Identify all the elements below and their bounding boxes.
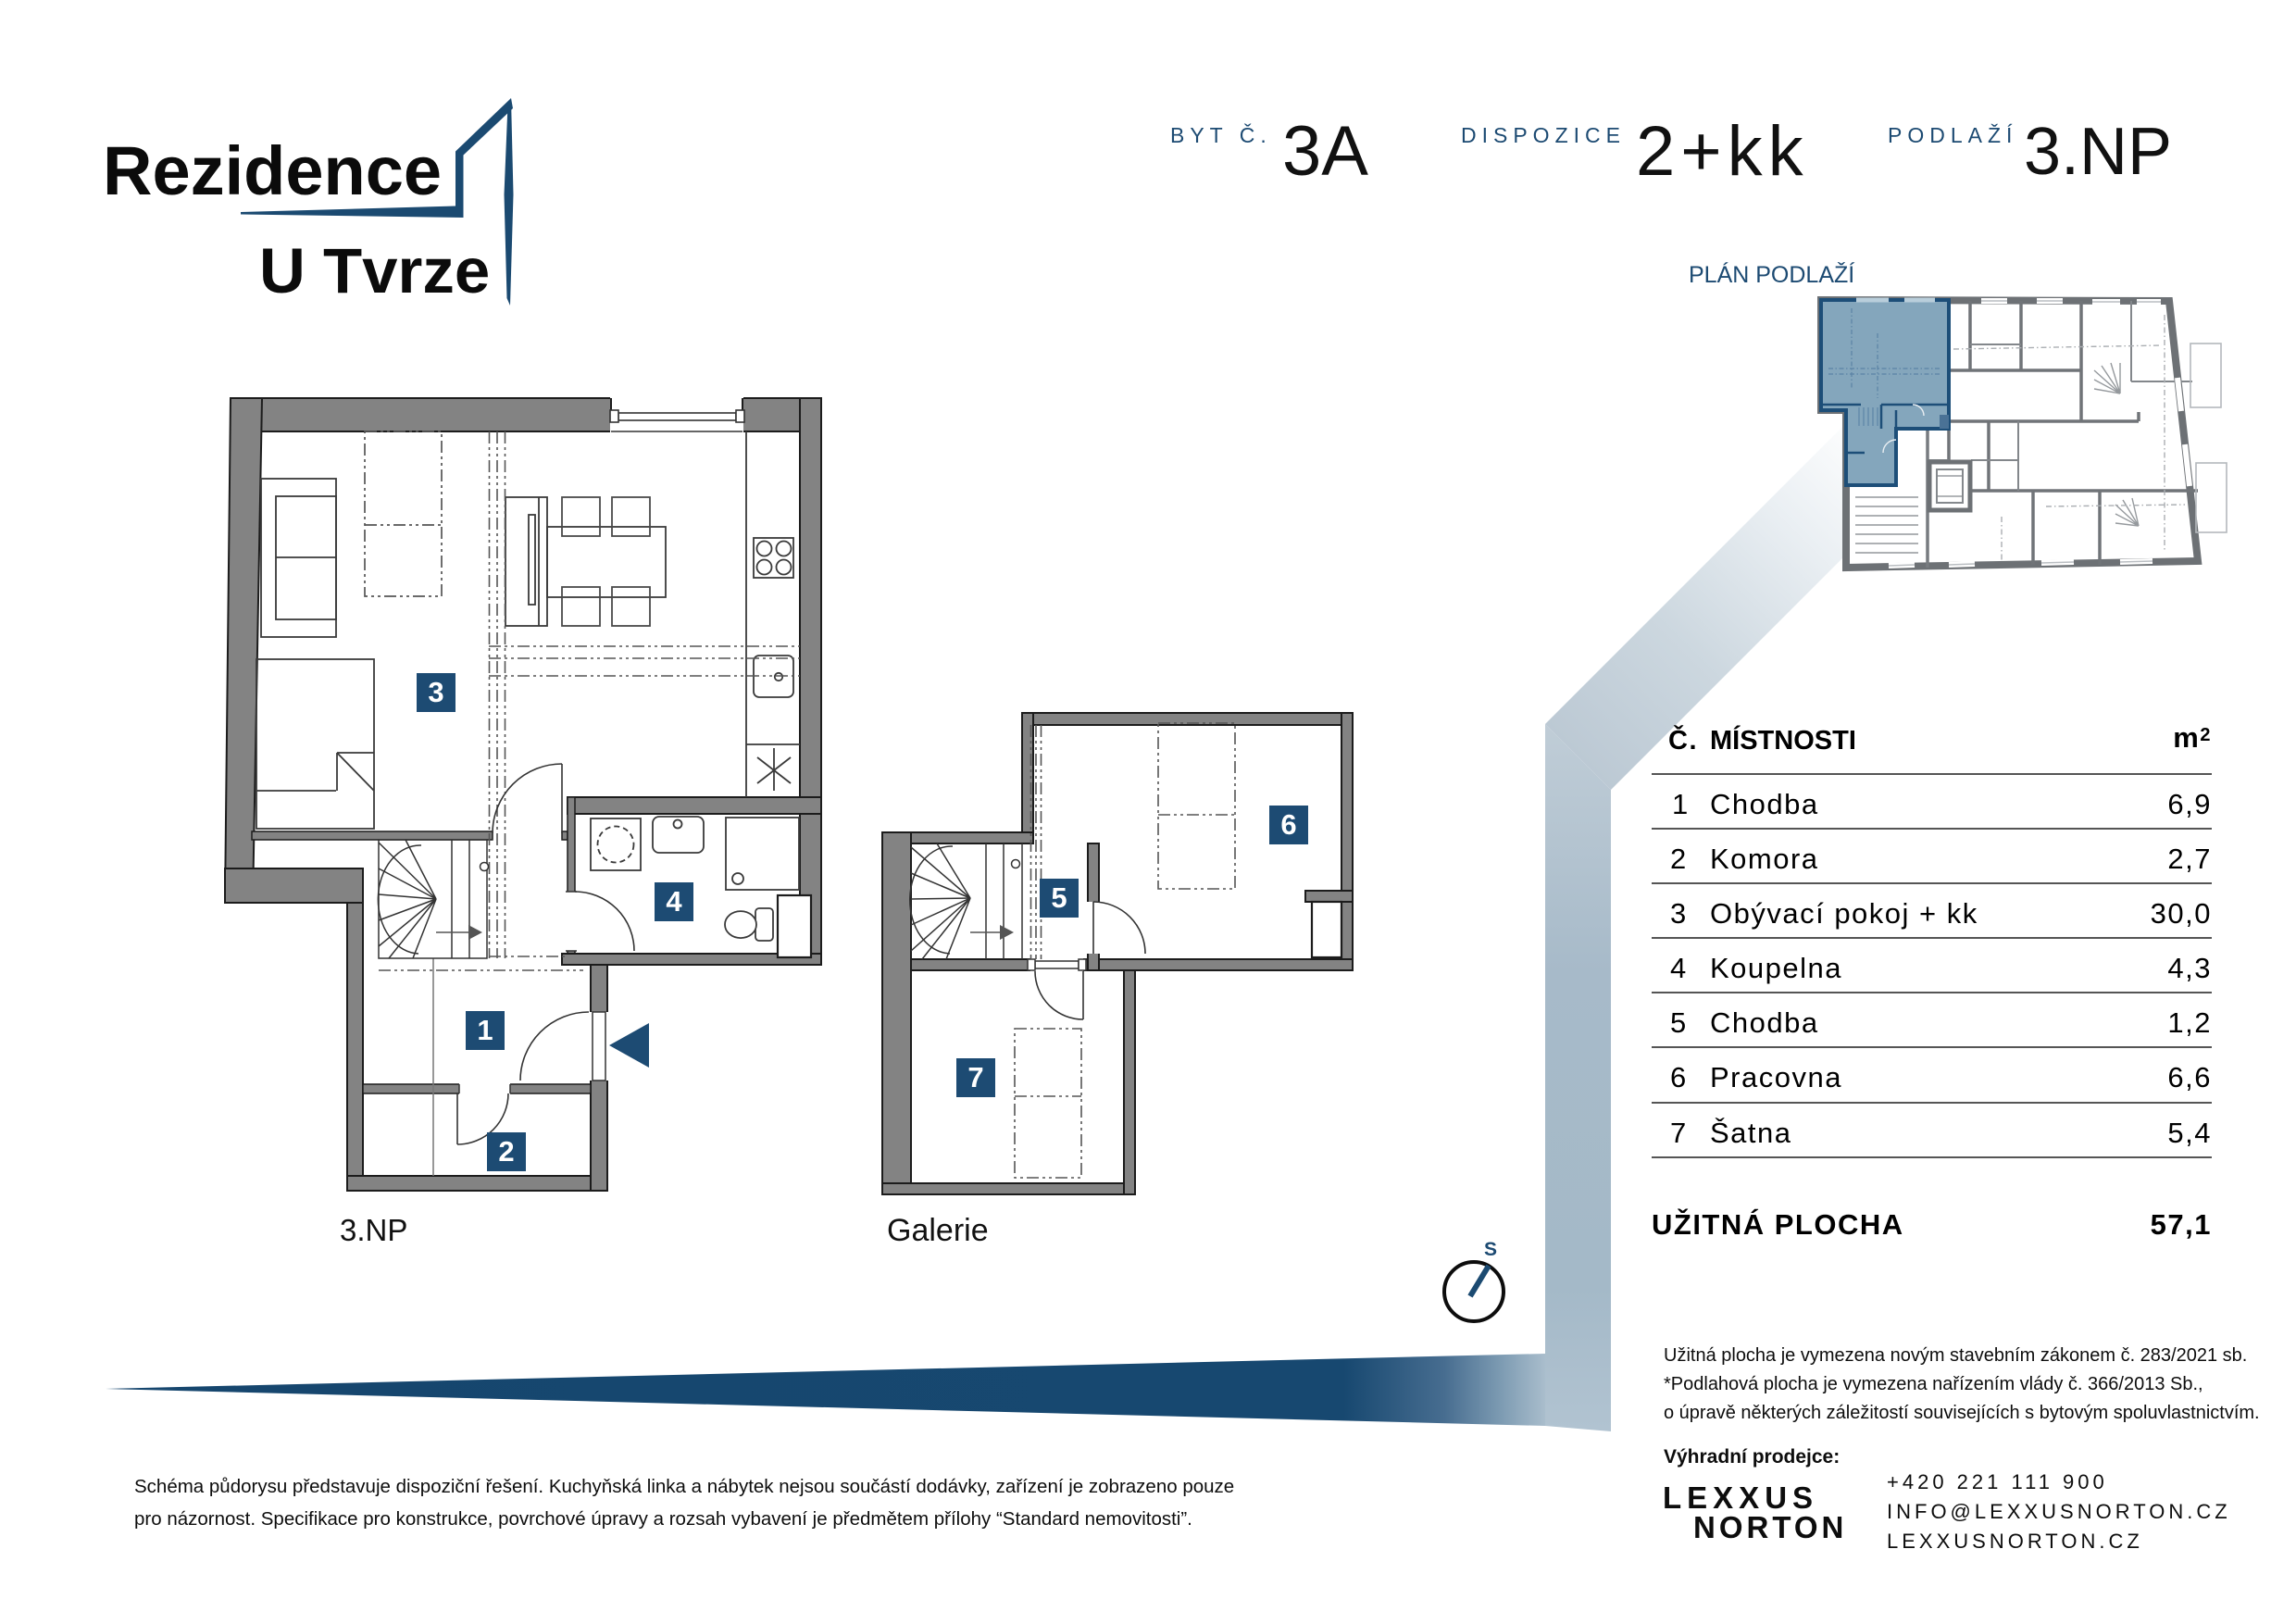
svg-text:5: 5	[1051, 881, 1067, 914]
svg-text:3: 3	[428, 676, 443, 708]
svg-text:6: 6	[1280, 808, 1296, 841]
svg-text:2: 2	[498, 1135, 514, 1168]
svg-text:4: 4	[666, 885, 682, 918]
svg-text:7: 7	[967, 1061, 983, 1093]
svg-text:1: 1	[477, 1014, 493, 1046]
